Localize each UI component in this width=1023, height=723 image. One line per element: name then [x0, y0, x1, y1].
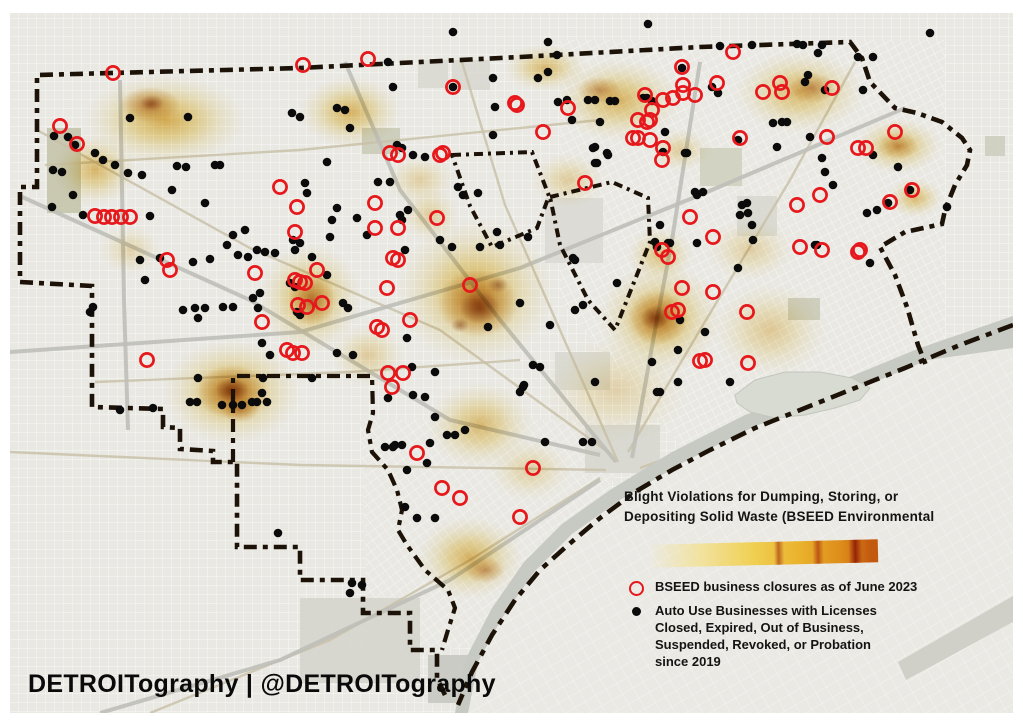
detroit-blight-map [0, 0, 1023, 723]
map-page: Blight Violations for Dumping, Storing, … [0, 0, 1023, 723]
